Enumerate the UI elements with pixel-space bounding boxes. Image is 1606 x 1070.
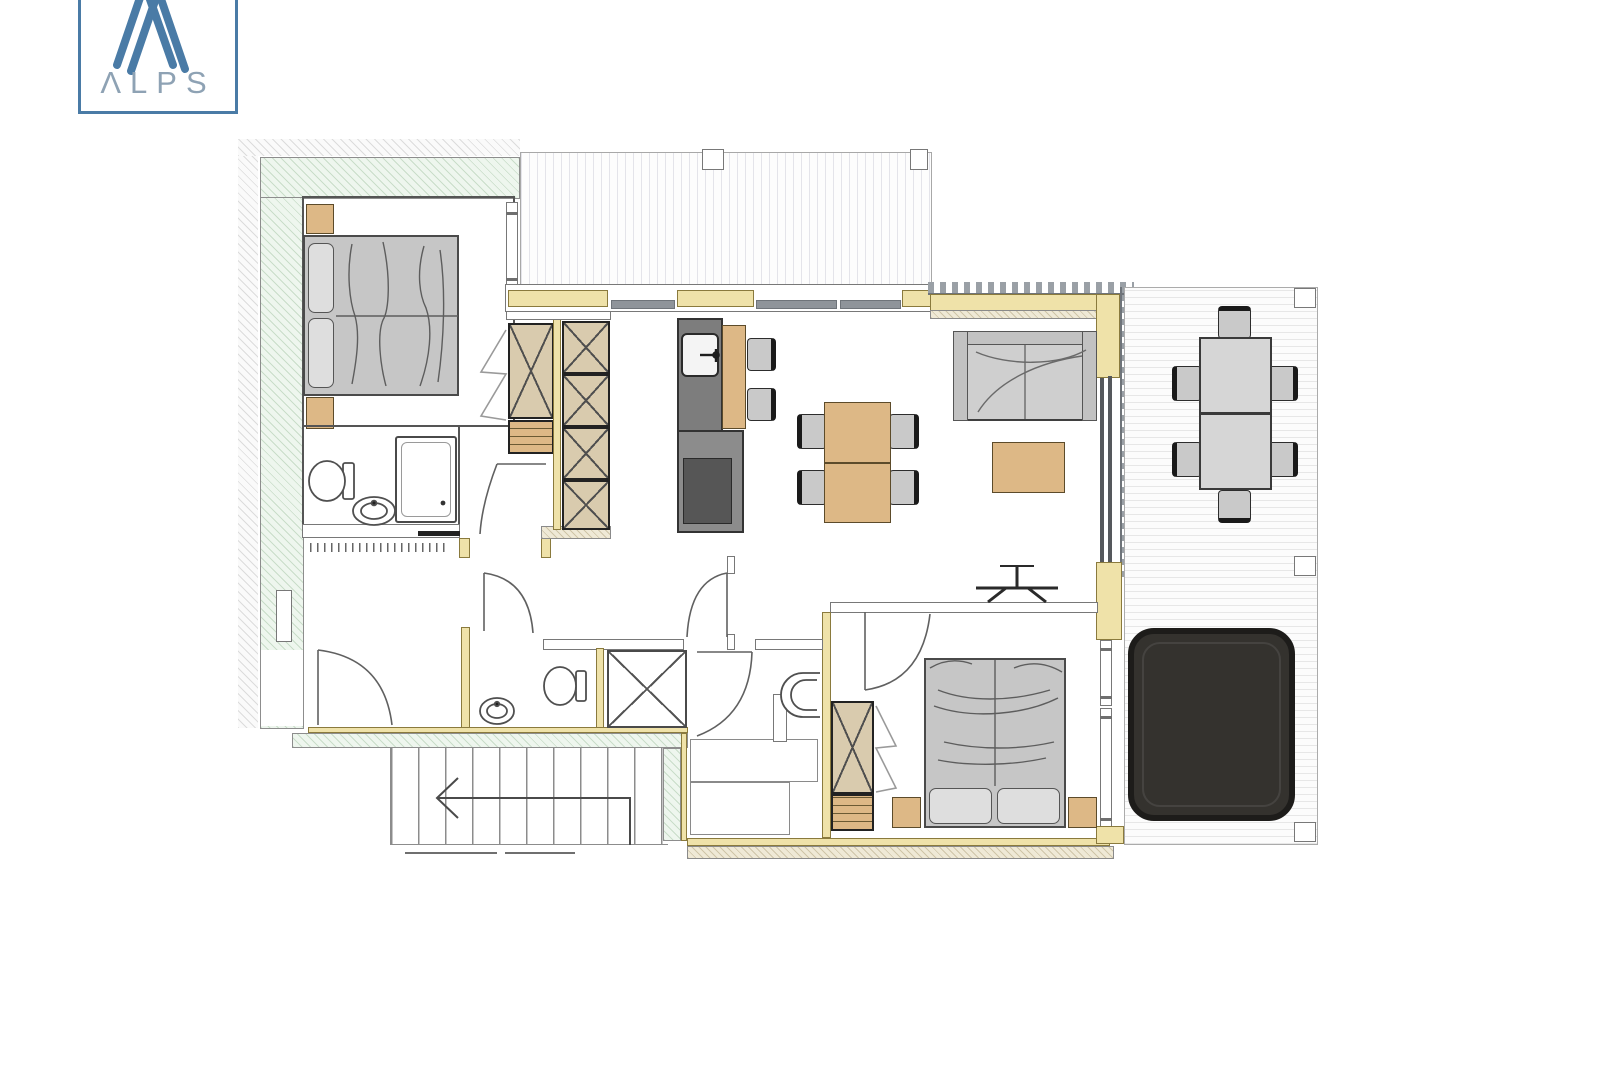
bed-2-creases	[930, 660, 1062, 786]
bed-1-creases	[336, 242, 458, 386]
toilet-wc	[544, 667, 586, 705]
washbasin-wc	[480, 698, 514, 724]
plan-symbols-overlay	[0, 0, 1606, 1070]
washbasin-bath-2	[781, 673, 820, 717]
washbasin-ensuite	[353, 497, 395, 525]
shower-drain	[441, 501, 446, 506]
toilet-ensuite	[309, 461, 354, 501]
kitchen-faucet	[700, 349, 719, 362]
stair-arrow	[437, 778, 630, 845]
door-bath-2	[697, 652, 752, 736]
sofa-creases	[976, 345, 1086, 419]
door-bedroom-1	[480, 464, 546, 534]
wardrobe-doors-open-1	[481, 330, 506, 420]
floor-plan-page: ΛLPS	[0, 0, 1606, 1070]
door-wc	[484, 573, 533, 633]
wardrobe-doors-open-2	[876, 706, 896, 792]
door-entry	[318, 650, 392, 725]
tv	[976, 566, 1058, 602]
door-bedroom-2	[865, 612, 930, 690]
door-living	[687, 573, 727, 637]
